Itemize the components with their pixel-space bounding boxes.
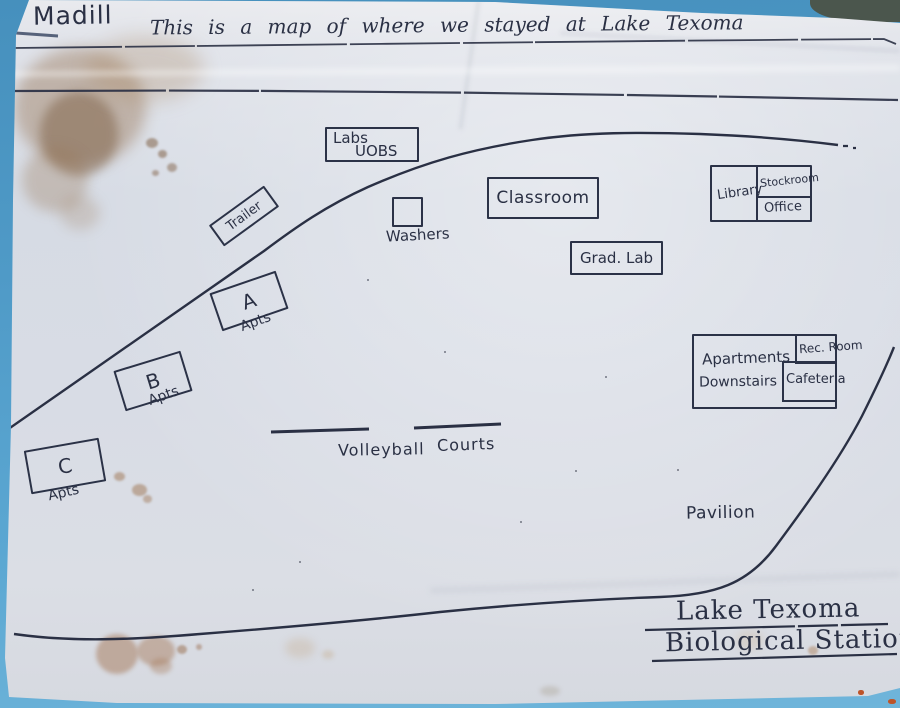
apartments-label-line2: Downstairs — [699, 373, 777, 390]
title-underline — [12, 39, 896, 48]
station-name-line2: Biological Station — [665, 624, 900, 658]
library-divider-vertical — [756, 167, 758, 220]
cafeteria-cell: Cafeteria — [782, 361, 835, 402]
map-paper: Madill This is a map of where we stayed … — [0, 0, 900, 708]
cafeteria-label: Cafeteria — [786, 372, 846, 387]
apartments-label-line1: Apartments — [702, 347, 791, 368]
ink-speck — [367, 279, 369, 281]
map-title: This is a map of where we stayed at Lake… — [150, 11, 720, 40]
classroom-label: Classroom — [496, 188, 589, 208]
volleyball-label: Volleyball — [338, 439, 425, 460]
labs-building: Labs UOBS — [325, 127, 419, 162]
courts-label: Courts — [437, 434, 496, 455]
stockroom-label: Stockroom — [759, 171, 819, 190]
left-edge-mark — [2, 32, 58, 36]
volleyball-court-line-1 — [271, 429, 369, 432]
ink-speck — [575, 470, 577, 472]
volleyball-court-line-2 — [414, 424, 501, 428]
library-building: Library Stockroom Office — [710, 165, 812, 222]
photo-background: Madill This is a map of where we stayed … — [0, 0, 900, 708]
washers-building — [392, 197, 423, 227]
grad-lab-label: Grad. Lab — [580, 249, 653, 267]
ink-speck — [252, 589, 254, 591]
grad-lab-building: Grad. Lab — [570, 241, 663, 275]
pavilion-label: Pavilion — [686, 502, 756, 523]
ink-speck — [520, 521, 522, 523]
table-speck — [888, 699, 896, 704]
ink-speck — [299, 561, 301, 563]
classroom-building: Classroom — [487, 177, 599, 219]
office-label: Office — [764, 199, 803, 216]
highway-line — [6, 91, 898, 100]
town-label-madill: Madill — [33, 0, 113, 30]
washers-label: Washers — [386, 224, 450, 245]
ink-speck — [444, 351, 446, 353]
library-divider-horizontal — [756, 196, 810, 198]
camp-road-dashes — [843, 146, 856, 148]
labs-label-line2: UOBS — [355, 142, 397, 160]
ink-speck — [677, 469, 679, 471]
table-speck — [858, 690, 864, 695]
ink-speck — [605, 376, 607, 378]
apartments-building: Apartments Downstairs Rec. Room Cafeteri… — [692, 334, 837, 409]
rec-room-cell: Rec. Room — [795, 336, 835, 364]
station-name-line1: Lake Texoma — [676, 593, 861, 626]
